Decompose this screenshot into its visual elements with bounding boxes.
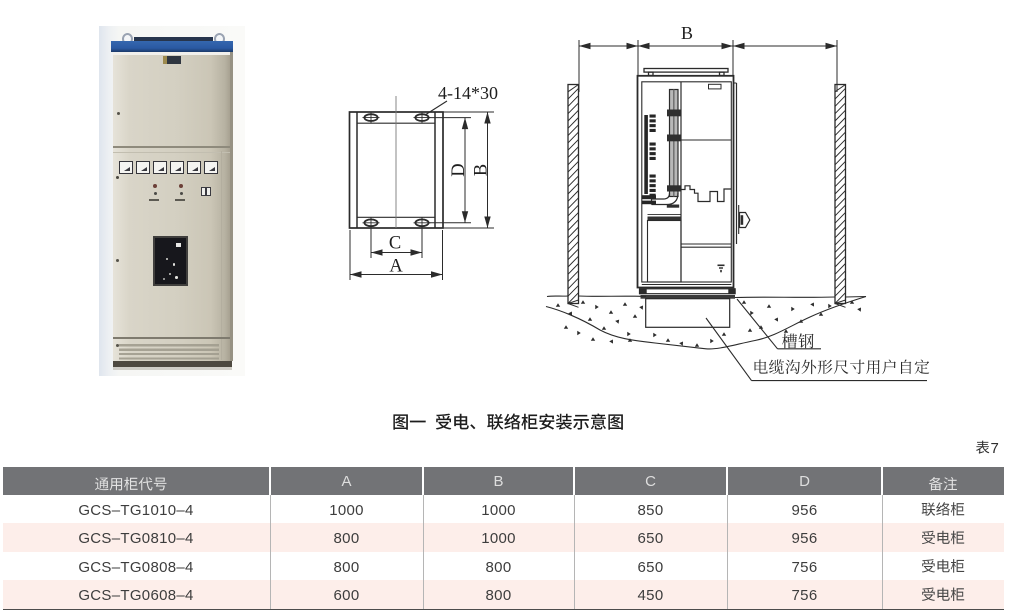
svg-text:B: B (681, 23, 693, 43)
svg-text:B: B (471, 164, 491, 176)
svg-text:A: A (389, 257, 403, 277)
svg-text:D: D (449, 163, 469, 176)
svg-text:C: C (389, 234, 401, 254)
svg-text:7: 7 (991, 440, 999, 457)
svg-text:4-14*30: 4-14*30 (438, 83, 498, 103)
